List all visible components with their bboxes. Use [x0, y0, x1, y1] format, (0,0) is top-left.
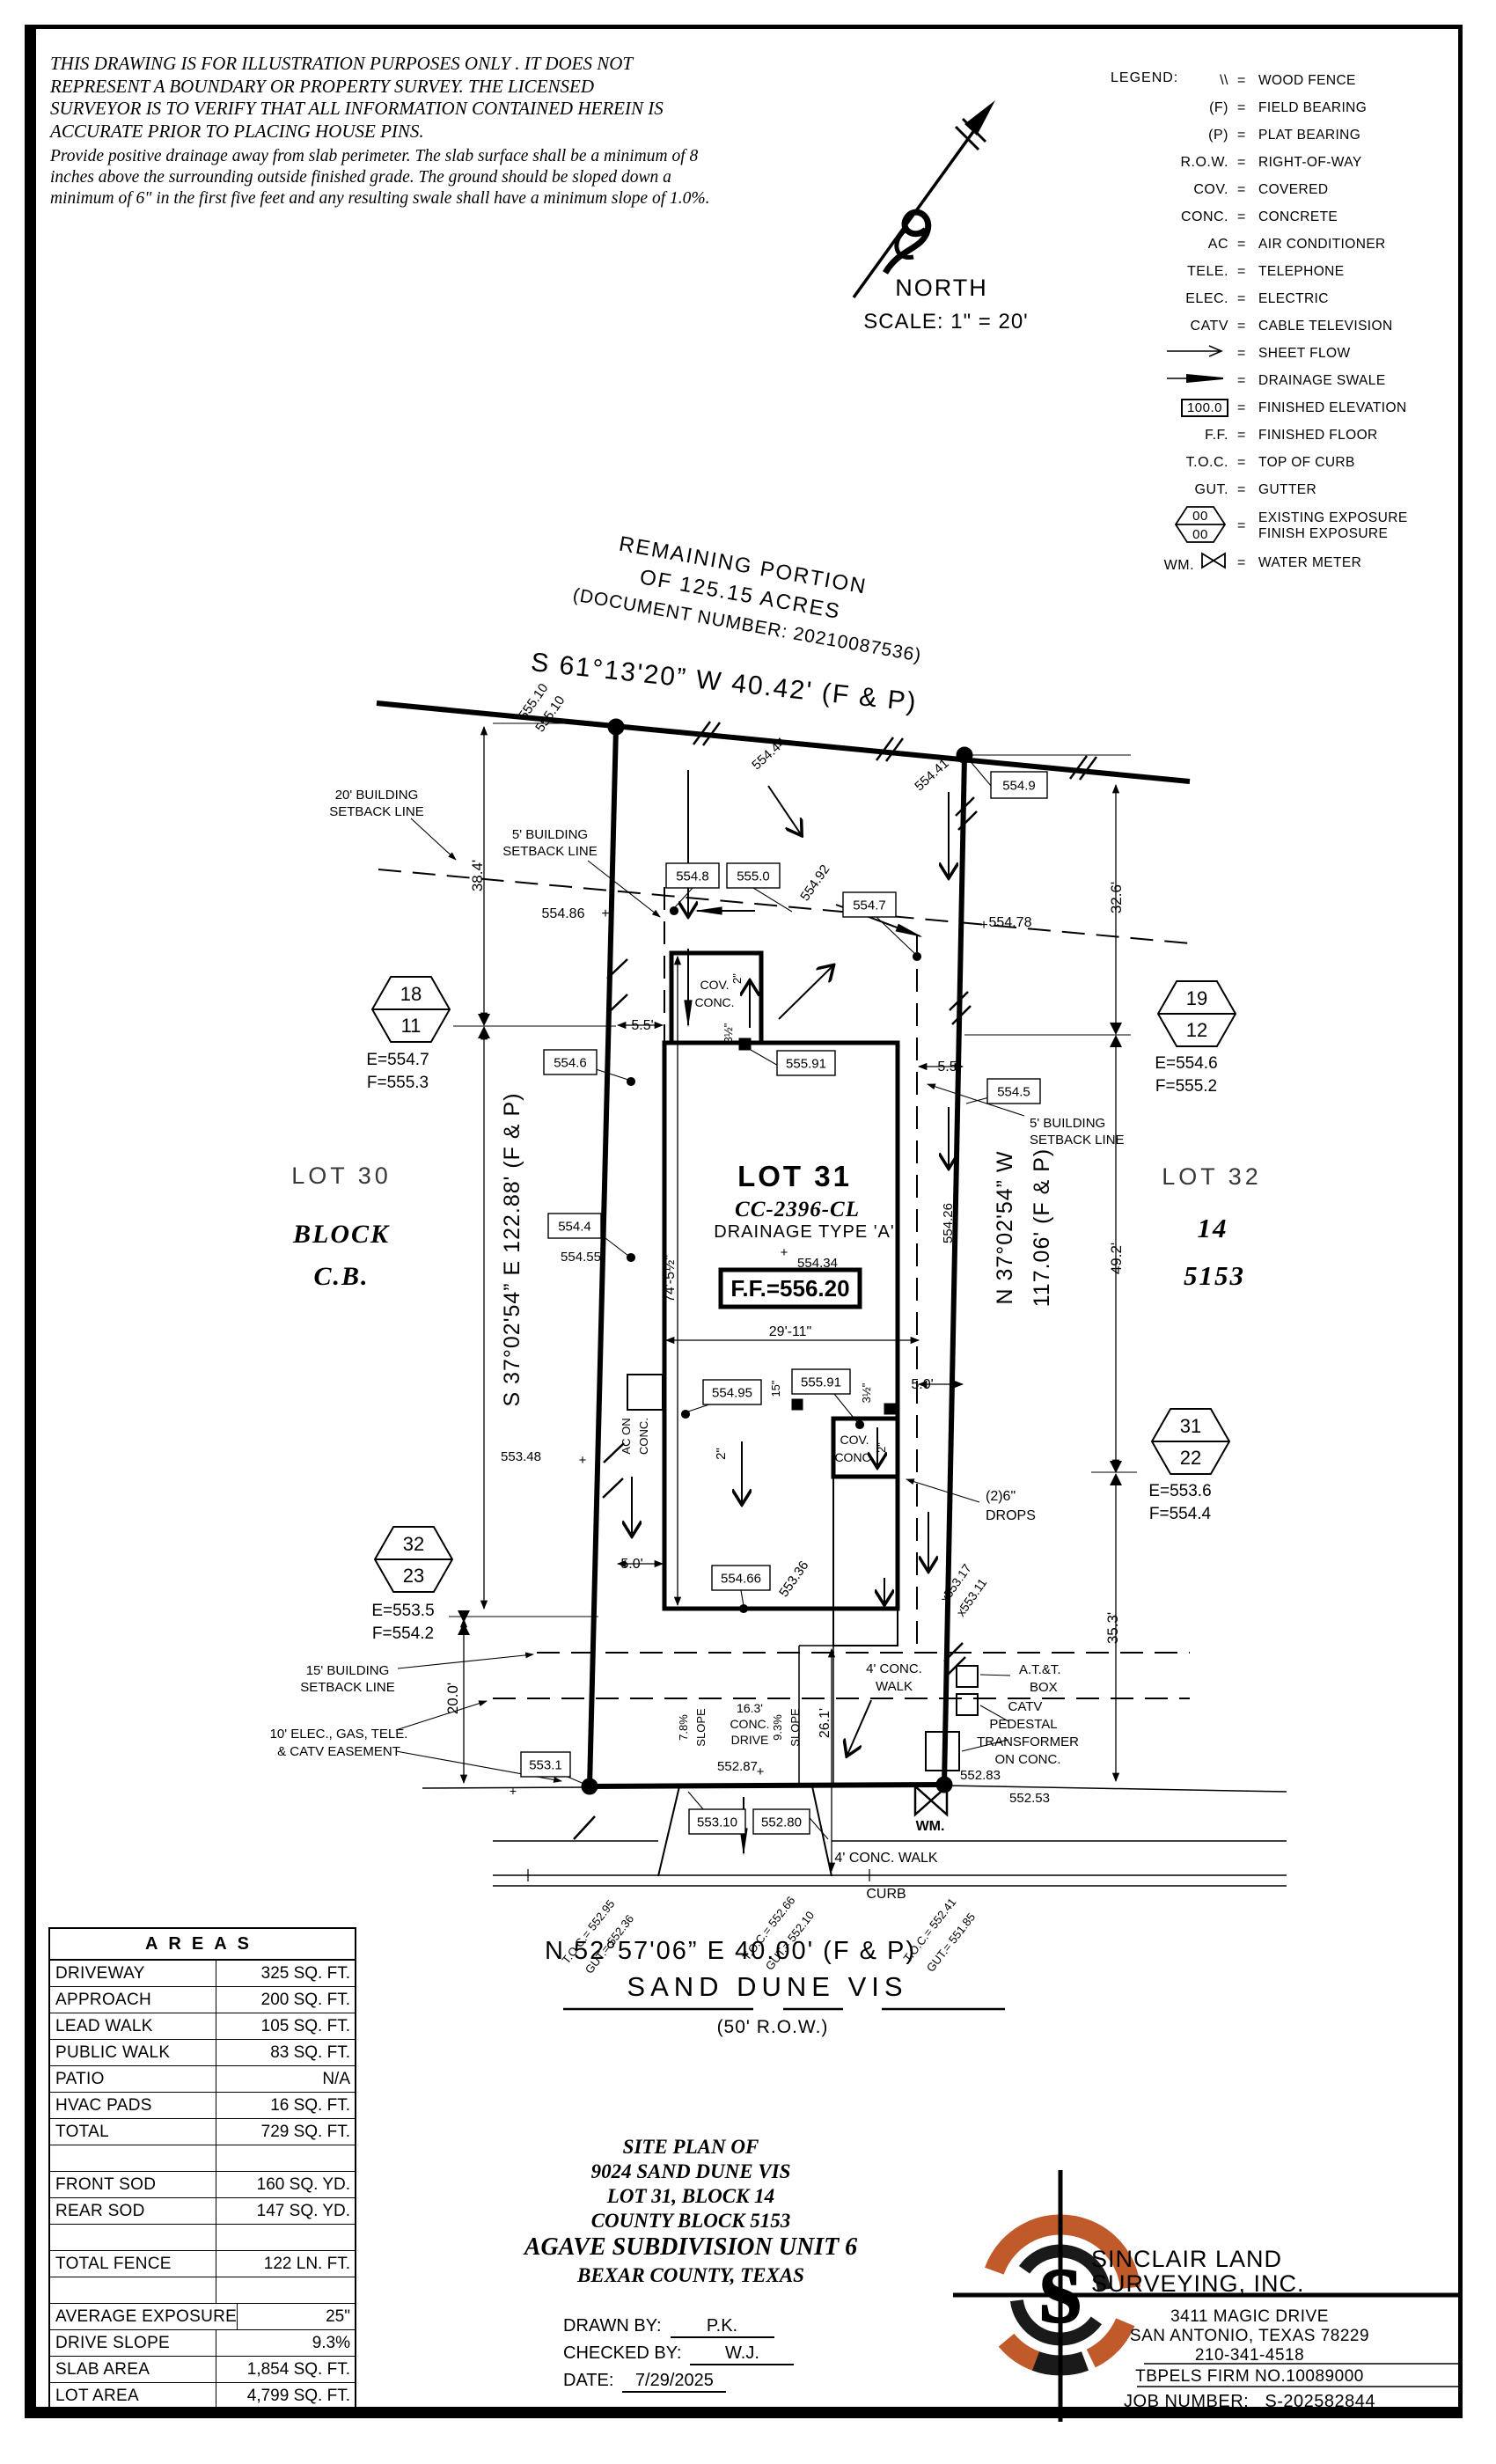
job-number-value: S-202582844: [1265, 2392, 1375, 2411]
company-name-line1: SINCLAIR LAND: [1091, 2246, 1496, 2273]
site-plan-sheet: REMAINING PORTIONOF 125.15 ACRES(DOCUMEN…: [0, 0, 1496, 2464]
job-number-label: JOB NUMBER:: [1124, 2392, 1249, 2411]
company-address2: SAN ANTONIO, TEXAS 78229: [1003, 2327, 1496, 2346]
company-phone: 210-341-4518: [1003, 2346, 1496, 2365]
company-firm-number: TBPELS FIRM NO.10089000: [1003, 2367, 1496, 2387]
job-number: JOB NUMBER: S-202582844: [1003, 2392, 1496, 2412]
company-address1: 3411 MAGIC DRIVE: [1003, 2307, 1496, 2327]
company-logo: S: [0, 0, 1496, 2464]
company-name-line2: SURVEYING, INC.: [1091, 2270, 1496, 2298]
